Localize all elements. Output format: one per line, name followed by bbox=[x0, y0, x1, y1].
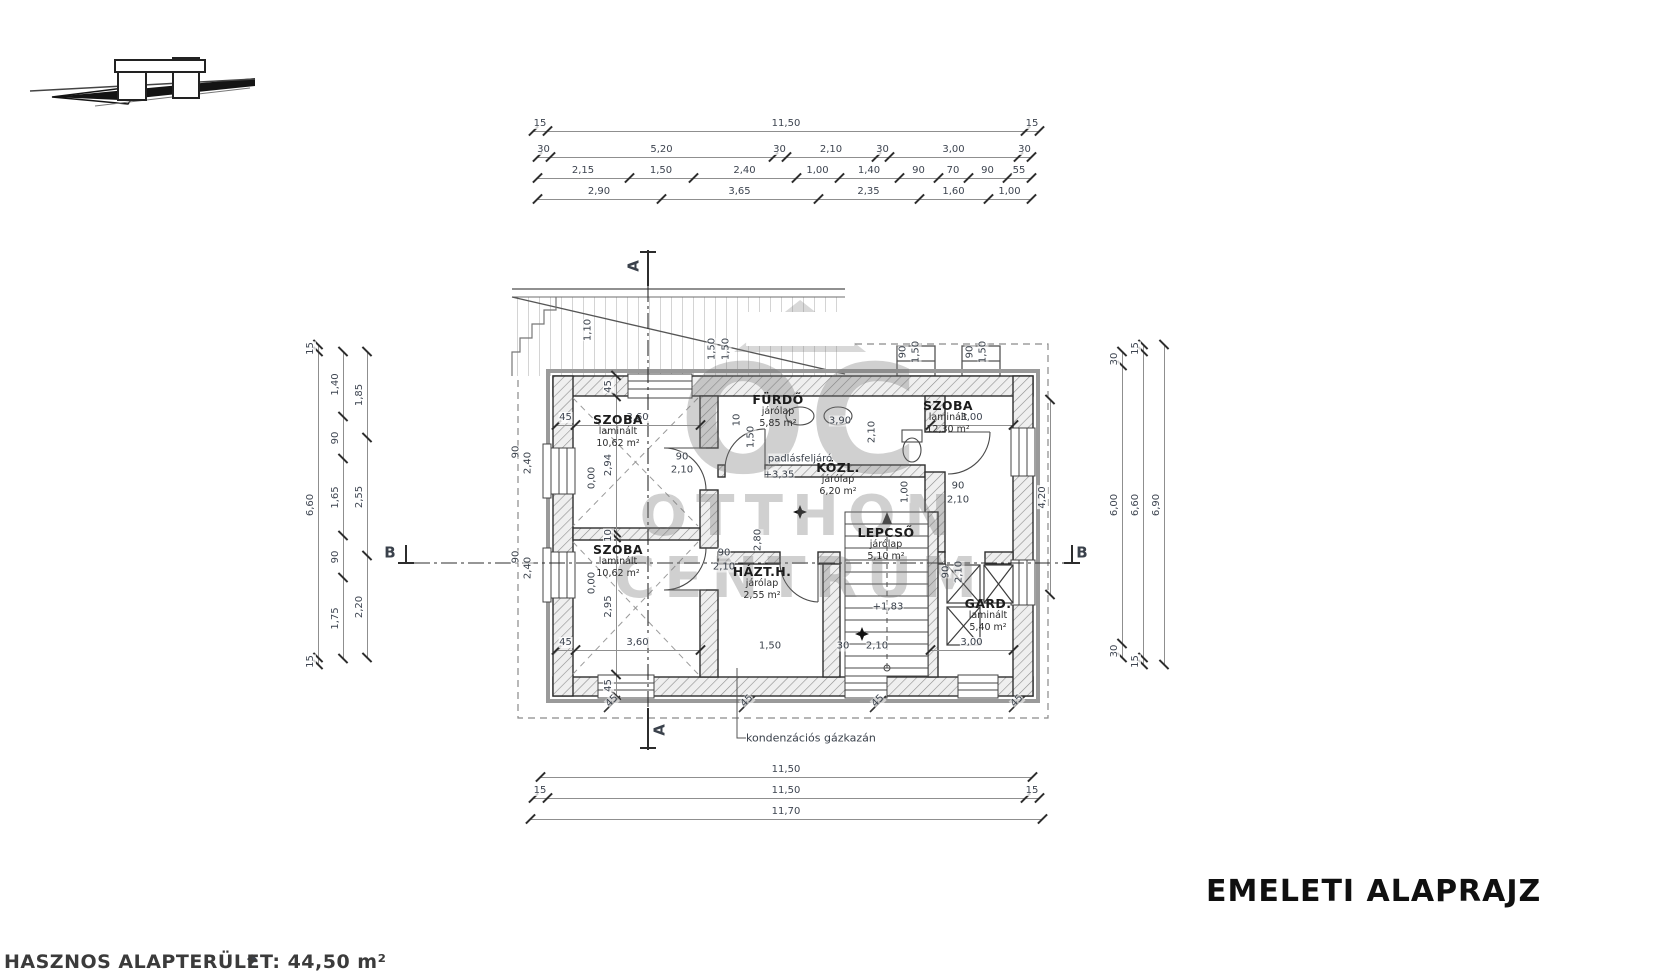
dim-label: 1,00 bbox=[900, 481, 911, 503]
dim-line bbox=[367, 352, 368, 658]
dim-label: 2,55 bbox=[354, 485, 365, 509]
room-label: FÜRDŐjárólap5,85 m² bbox=[752, 394, 803, 430]
dim-label: 2,10 bbox=[819, 144, 843, 155]
dim-label: 2,95 bbox=[603, 594, 614, 618]
room-area: 5,10 m² bbox=[857, 551, 914, 563]
dim-line bbox=[318, 345, 319, 665]
roof-hatch-area bbox=[512, 289, 845, 376]
room-name: SZOBA bbox=[923, 400, 973, 412]
drawing-title: EMELETI ALAPRAJZ bbox=[1206, 874, 1541, 909]
dim-label: 11,50 bbox=[771, 118, 802, 129]
section-mark-a-top: A bbox=[629, 260, 640, 272]
dim-label: 1,40 bbox=[857, 165, 881, 176]
dim-line bbox=[537, 178, 1031, 179]
dim-label: 1,60 bbox=[941, 186, 965, 197]
dim-label: 2,80 bbox=[753, 529, 764, 551]
dim-label: 2,10 bbox=[671, 465, 693, 476]
dim-label: 15 bbox=[1025, 118, 1040, 129]
dim-label: 6,00 bbox=[1109, 493, 1120, 517]
dim-label: 45 bbox=[558, 637, 573, 648]
dim-label: 3,65 bbox=[727, 186, 751, 197]
dim-label: 15 bbox=[1025, 785, 1040, 796]
dim-label: 6,60 bbox=[1130, 493, 1141, 517]
room-area: 10,62 m² bbox=[593, 438, 643, 450]
room-label: GARD.laminált5,40 m² bbox=[965, 598, 1012, 634]
dim-label: 1,40 bbox=[330, 372, 341, 396]
toilet-tank bbox=[902, 430, 922, 442]
dim-label: 90 bbox=[511, 446, 522, 459]
room-floor-type: járólap bbox=[857, 539, 914, 551]
dim-label: 90 bbox=[952, 481, 965, 492]
dim-label: 90 bbox=[911, 165, 926, 176]
dim-label: 30 bbox=[772, 144, 787, 155]
dim-line bbox=[930, 650, 1013, 651]
dim-label: 15 bbox=[1130, 654, 1141, 669]
dim-label: 10 bbox=[732, 414, 743, 427]
dim-label: 15 bbox=[1130, 341, 1141, 356]
dim-label: 6,60 bbox=[305, 493, 316, 517]
room-area: 6,20 m² bbox=[816, 486, 860, 498]
dim-label: 2,35 bbox=[856, 186, 880, 197]
room-name: GARD. bbox=[965, 598, 1012, 610]
dim-label: 90 bbox=[511, 551, 522, 564]
dim-label: 2,94 bbox=[603, 453, 614, 477]
dim-label: 1,50 bbox=[759, 641, 781, 652]
boiler-annotation: kondenzációs gázkazán bbox=[746, 733, 876, 744]
dim-label: 1,50 bbox=[649, 165, 673, 176]
dim-label: 1,85 bbox=[354, 383, 365, 407]
dim-label: 3,90 bbox=[829, 416, 851, 427]
dim-label: 11,50 bbox=[771, 764, 802, 775]
room-floor-type: laminált bbox=[965, 610, 1012, 622]
dim-label: 3,60 bbox=[625, 637, 649, 648]
dim-label: 1,50 bbox=[978, 341, 989, 363]
dim-line bbox=[540, 777, 1032, 778]
dim-label: 90 bbox=[898, 346, 909, 359]
dim-line bbox=[556, 650, 700, 651]
logo-north-arrow bbox=[30, 58, 255, 106]
dim-line bbox=[1050, 400, 1051, 595]
level-mark: +1,83 bbox=[873, 602, 904, 613]
room-floor-type: járólap bbox=[752, 406, 803, 418]
room-name: SZOBA bbox=[593, 544, 643, 556]
dim-label: 2,40 bbox=[523, 452, 534, 474]
dim-line bbox=[1164, 345, 1165, 665]
dim-label: 11,70 bbox=[771, 806, 802, 817]
dim-line bbox=[537, 199, 1031, 200]
dim-label: 90 bbox=[718, 548, 731, 559]
dim-label: 55 bbox=[1012, 165, 1027, 176]
room-area: 5,85 m² bbox=[752, 418, 803, 430]
room-name: FÜRDŐ bbox=[752, 394, 803, 406]
dim-label: 2,15 bbox=[571, 165, 595, 176]
room-area: 12,30 m² bbox=[923, 424, 973, 436]
room-label: HÁZT.H.járólap2,55 m² bbox=[733, 566, 792, 602]
dim-line bbox=[533, 131, 1039, 132]
dim-line bbox=[343, 352, 344, 659]
dim-label: 1,65 bbox=[330, 485, 341, 509]
dim-label: 11,50 bbox=[771, 785, 802, 796]
room-area: 5,40 m² bbox=[965, 622, 1012, 634]
dim-label: 30 bbox=[875, 144, 890, 155]
dim-line bbox=[533, 798, 1039, 799]
dim-label: 15 bbox=[533, 785, 548, 796]
dim-label: 2,90 bbox=[587, 186, 611, 197]
room-label: KÖZL.járólap6,20 m² bbox=[816, 462, 860, 498]
dim-label: 2,40 bbox=[523, 557, 534, 579]
dim-label: 2,10 bbox=[866, 641, 888, 652]
dim-label: 1,75 bbox=[330, 606, 341, 630]
dim-label: 2,10 bbox=[954, 561, 965, 583]
dim-label: 15 bbox=[305, 654, 316, 669]
room-floor-type: laminált bbox=[593, 556, 643, 568]
room-name: HÁZT.H. bbox=[733, 566, 792, 578]
dim-label: 5,20 bbox=[649, 144, 673, 155]
section-mark-a-bottom: A bbox=[655, 724, 666, 736]
section-mark-b-left: B bbox=[384, 548, 395, 559]
dim-label: 1,50 bbox=[911, 341, 922, 363]
dim-label: 90 bbox=[330, 550, 341, 565]
dim-label: 90 bbox=[941, 566, 952, 579]
dim-label: 2,10 bbox=[867, 421, 878, 443]
dim-label: 10 bbox=[603, 528, 614, 543]
dim-label: 3,00 bbox=[941, 144, 965, 155]
dim-label: 4,20 bbox=[1037, 485, 1048, 509]
room-label: SZOBAlaminált10,62 m² bbox=[593, 414, 643, 450]
dim-label: 2,10 bbox=[947, 495, 969, 506]
dim-label: 90 bbox=[330, 431, 341, 446]
dim-label: 2,20 bbox=[354, 595, 365, 619]
dim-label: 30 bbox=[1109, 352, 1120, 367]
room-name: LEPCSŐ bbox=[857, 527, 914, 539]
dim-line bbox=[1143, 345, 1144, 665]
room-label: LEPCSŐjárólap5,10 m² bbox=[857, 527, 914, 563]
room-label: SZOBAlaminált10,62 m² bbox=[593, 544, 643, 580]
dim-label: 15 bbox=[305, 341, 316, 356]
dim-label: 90 bbox=[980, 165, 995, 176]
dim-label: 0,00 bbox=[587, 467, 598, 489]
dim-label: 30 bbox=[1109, 644, 1120, 659]
dim-label: 1,00 bbox=[997, 186, 1021, 197]
dim-label: 15 bbox=[533, 118, 548, 129]
dim-label: 1,50 bbox=[707, 338, 718, 360]
floorplan-page: { "title": "EMELETI ALAPRAJZ", "footer":… bbox=[0, 0, 1668, 964]
room-name: KÖZL. bbox=[816, 462, 860, 474]
dim-label: 1,10 bbox=[583, 319, 594, 341]
dim-line bbox=[530, 819, 1042, 820]
room-floor-type: járólap bbox=[816, 474, 860, 486]
dim-line bbox=[1122, 352, 1123, 658]
room-name: SZOBA bbox=[593, 414, 643, 426]
room-label: SZOBAlaminált12,30 m² bbox=[923, 400, 973, 436]
dim-label: 3,00 bbox=[959, 637, 983, 648]
level-mark: +3,35 bbox=[764, 470, 795, 481]
usable-area-note: HASZNOS ALAPTERÜLET: 44,50 m² bbox=[4, 951, 386, 973]
dim-label: 30 bbox=[1017, 144, 1032, 155]
room-area: 10,62 m² bbox=[593, 568, 643, 580]
dim-label: 90 bbox=[676, 452, 689, 463]
room-floor-type: laminált bbox=[923, 412, 973, 424]
dim-label: 1,00 bbox=[805, 165, 829, 176]
room-area: 2,55 m² bbox=[733, 590, 792, 602]
dim-label: 30 bbox=[536, 144, 551, 155]
dim-label: 45 bbox=[603, 678, 614, 693]
dim-label: 90 bbox=[965, 346, 976, 359]
dim-label: 70 bbox=[946, 165, 961, 176]
section-mark-b-right: B bbox=[1076, 548, 1087, 559]
room-floor-type: járólap bbox=[733, 578, 792, 590]
room-floor-type: laminált bbox=[593, 426, 643, 438]
dim-label: 6,90 bbox=[1151, 493, 1162, 517]
dim-label: 2,40 bbox=[732, 165, 756, 176]
dim-label: 30 bbox=[837, 641, 850, 652]
dim-label: 45 bbox=[558, 412, 573, 423]
dim-label: 45 bbox=[603, 379, 614, 394]
dim-label: 1,50 bbox=[721, 338, 732, 360]
